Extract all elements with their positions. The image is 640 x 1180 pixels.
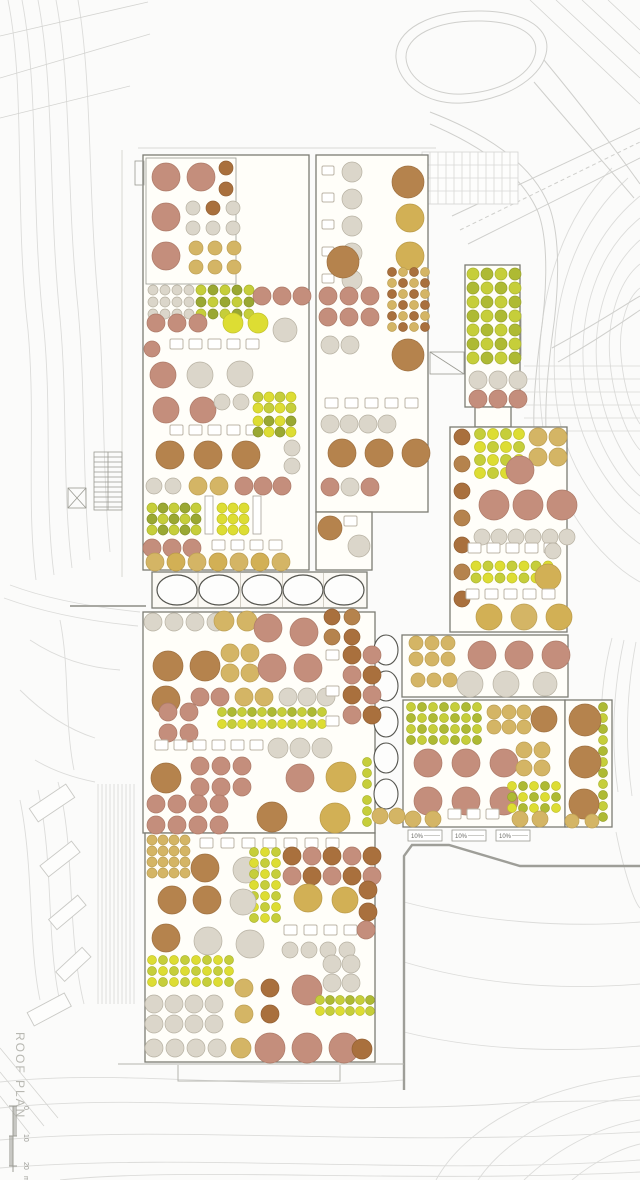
plant-circle bbox=[479, 490, 509, 520]
plant-circle bbox=[227, 361, 253, 387]
plant-circle bbox=[180, 835, 190, 845]
plant-circle bbox=[481, 324, 493, 336]
plant-circle bbox=[160, 285, 170, 295]
planter-square bbox=[487, 543, 500, 553]
plant-circle bbox=[165, 613, 183, 631]
plant-circle bbox=[148, 285, 158, 295]
plant-circle bbox=[321, 336, 339, 354]
plant-circle bbox=[509, 371, 527, 389]
plant-circle bbox=[451, 725, 460, 734]
plant-circle bbox=[326, 762, 356, 792]
plant-circle bbox=[495, 324, 507, 336]
plant-circle bbox=[165, 1015, 183, 1033]
plant-circle bbox=[284, 458, 300, 474]
planter-square bbox=[250, 540, 263, 550]
plant-circle bbox=[490, 749, 518, 777]
plant-circle bbox=[185, 1015, 203, 1033]
plant-circle bbox=[343, 666, 361, 684]
plant-circle bbox=[467, 310, 479, 322]
plant-circle bbox=[208, 260, 222, 274]
plant-circle bbox=[473, 736, 482, 745]
gridded-building-roof bbox=[422, 152, 518, 204]
plant-circle bbox=[212, 757, 230, 775]
plant-circle bbox=[569, 746, 601, 778]
plant-circle bbox=[392, 166, 424, 198]
planter-square bbox=[242, 838, 255, 848]
plant-circle bbox=[169, 835, 179, 845]
plant-circle bbox=[462, 725, 471, 734]
planter-square bbox=[322, 274, 334, 283]
plant-circle bbox=[219, 182, 233, 196]
plant-circle bbox=[250, 848, 259, 857]
plant-circle bbox=[239, 514, 249, 524]
plant-circle bbox=[214, 978, 223, 987]
plant-circle bbox=[475, 442, 486, 453]
plant-circle bbox=[272, 870, 281, 879]
plant-circle bbox=[193, 886, 221, 914]
plant-circle bbox=[301, 942, 317, 958]
plant-circle bbox=[429, 725, 438, 734]
plant-circle bbox=[181, 978, 190, 987]
plant-circle bbox=[210, 477, 228, 495]
plant-circle bbox=[286, 416, 296, 426]
planter-square bbox=[344, 516, 357, 526]
plant-circle bbox=[495, 352, 507, 364]
plant-circle bbox=[226, 201, 240, 215]
plant-circle bbox=[250, 859, 259, 868]
plant-circle bbox=[253, 403, 263, 413]
plant-circle bbox=[203, 978, 212, 987]
plant-circle bbox=[569, 704, 601, 736]
plant-circle bbox=[217, 514, 227, 524]
plant-circle bbox=[344, 609, 360, 625]
plant-circle bbox=[547, 490, 577, 520]
plant-circle bbox=[414, 749, 442, 777]
plant-circle bbox=[209, 553, 227, 571]
planter-square bbox=[284, 925, 297, 935]
plant-circle bbox=[261, 979, 279, 997]
plant-circle bbox=[475, 455, 486, 466]
plant-circle bbox=[328, 439, 356, 467]
plant-circle bbox=[363, 780, 372, 789]
plant-circle bbox=[343, 847, 361, 865]
plant-circle bbox=[239, 525, 249, 535]
plant-circle bbox=[410, 301, 419, 310]
plant-circle bbox=[440, 736, 449, 745]
plant-circle bbox=[228, 720, 237, 729]
plant-circle bbox=[298, 720, 307, 729]
plant-circle bbox=[495, 573, 505, 583]
hillside-buildings bbox=[27, 784, 91, 1026]
plant-circle bbox=[294, 654, 322, 682]
plant-circle bbox=[208, 297, 218, 307]
plant-circle bbox=[221, 664, 239, 682]
plant-circle bbox=[425, 652, 439, 666]
scale-unit: m bbox=[22, 1176, 29, 1180]
plant-circle bbox=[228, 503, 238, 513]
planter-square bbox=[486, 809, 499, 819]
plant-circle bbox=[254, 477, 272, 495]
plant-circle bbox=[363, 666, 381, 684]
plant-circle bbox=[495, 561, 505, 571]
plant-circle bbox=[214, 394, 230, 410]
plant-circle bbox=[467, 268, 479, 280]
plant-circle bbox=[238, 720, 247, 729]
plant-circle bbox=[469, 371, 487, 389]
stair-west bbox=[68, 452, 122, 510]
plant-circle bbox=[147, 846, 157, 856]
plant-circle bbox=[414, 787, 442, 815]
plant-circle bbox=[196, 297, 206, 307]
plant-circle bbox=[169, 868, 179, 878]
plant-circle bbox=[189, 241, 203, 255]
plant-circle bbox=[150, 362, 176, 388]
plant-circle bbox=[147, 503, 157, 513]
plant-circle bbox=[363, 796, 372, 805]
plant-circle bbox=[191, 525, 201, 535]
planter-square bbox=[284, 838, 297, 848]
plant-circle bbox=[264, 416, 274, 426]
plant-circle bbox=[366, 1007, 375, 1016]
plant-circle bbox=[443, 673, 457, 687]
plant-circle bbox=[232, 441, 260, 469]
plant-circle bbox=[388, 290, 397, 299]
plant-circle bbox=[363, 758, 372, 767]
planter-square bbox=[325, 398, 338, 408]
plant-circle bbox=[290, 738, 310, 758]
plant-circle bbox=[235, 688, 253, 706]
plant-circle bbox=[402, 439, 430, 467]
planter-square bbox=[221, 838, 234, 848]
plant-circle bbox=[565, 814, 579, 828]
roof-plan-drawing: 10%10%10% ROOF PLAN 0 10 20 m bbox=[0, 0, 640, 1180]
plant-circle bbox=[599, 747, 608, 756]
planter-square bbox=[231, 740, 244, 750]
planter-square bbox=[208, 425, 221, 435]
plant-circle bbox=[519, 561, 529, 571]
plant-circle bbox=[418, 714, 427, 723]
plant-circle bbox=[475, 429, 486, 440]
plant-circle bbox=[180, 846, 190, 856]
plant-circle bbox=[235, 1005, 253, 1023]
plant-circle bbox=[451, 736, 460, 745]
plant-circle bbox=[293, 287, 311, 305]
skylight bbox=[157, 575, 197, 605]
plant-circle bbox=[180, 724, 198, 742]
plant-circle bbox=[418, 725, 427, 734]
porthole bbox=[374, 779, 398, 809]
plant-circle bbox=[192, 967, 201, 976]
plant-circle bbox=[230, 889, 256, 915]
plant-circle bbox=[206, 221, 220, 235]
plant-circle bbox=[531, 706, 557, 732]
plant-circle bbox=[487, 705, 501, 719]
plant-circle bbox=[356, 1007, 365, 1016]
plant-circle bbox=[286, 764, 314, 792]
plant-circle bbox=[340, 308, 358, 326]
plant-circle bbox=[343, 646, 361, 664]
plant-circle bbox=[361, 478, 379, 496]
plant-circle bbox=[519, 573, 529, 583]
plant-circle bbox=[332, 887, 358, 913]
plant-circle bbox=[144, 341, 160, 357]
plant-circle bbox=[272, 848, 281, 857]
plant-circle bbox=[278, 708, 287, 717]
plant-circle bbox=[343, 706, 361, 724]
plant-circle bbox=[232, 285, 242, 295]
plant-circle bbox=[261, 881, 270, 890]
plant-circle bbox=[217, 503, 227, 513]
plant-circle bbox=[483, 561, 493, 571]
planter-square bbox=[504, 589, 517, 599]
plant-circle bbox=[233, 778, 251, 796]
plant-circle bbox=[506, 456, 534, 484]
plant-circle bbox=[407, 714, 416, 723]
plant-circle bbox=[147, 835, 157, 845]
plant-circle bbox=[146, 553, 164, 571]
plant-circle bbox=[190, 397, 216, 423]
plant-circle bbox=[344, 629, 360, 645]
plant-circle bbox=[189, 816, 207, 834]
planter-square bbox=[170, 339, 183, 349]
plant-circle bbox=[599, 780, 608, 789]
plant-circle bbox=[181, 967, 190, 976]
plant-circle bbox=[158, 886, 186, 914]
plant-circle bbox=[147, 795, 165, 813]
plant-circle bbox=[147, 525, 157, 535]
plant-circle bbox=[359, 415, 377, 433]
plant-circle bbox=[316, 996, 325, 1005]
plant-circle bbox=[481, 268, 493, 280]
plant-circle bbox=[294, 884, 322, 912]
plant-circle bbox=[184, 285, 194, 295]
plant-circle bbox=[170, 978, 179, 987]
plant-circle bbox=[158, 835, 168, 845]
plant-circle bbox=[264, 427, 274, 437]
plant-circle bbox=[208, 241, 222, 255]
plant-circle bbox=[473, 714, 482, 723]
plant-circle bbox=[168, 795, 186, 813]
plant-circle bbox=[180, 525, 190, 535]
ramps: 10%10%10% bbox=[408, 830, 530, 841]
plant-circle bbox=[363, 646, 381, 664]
plant-circle bbox=[342, 189, 362, 209]
plant-circle bbox=[170, 967, 179, 976]
plant-circle bbox=[264, 403, 274, 413]
planter-square bbox=[326, 838, 339, 848]
plant-circle bbox=[599, 802, 608, 811]
plant-circle bbox=[599, 736, 608, 745]
plant-circle bbox=[298, 688, 316, 706]
plant-circle bbox=[186, 221, 200, 235]
plant-circle bbox=[180, 703, 198, 721]
plant-circle bbox=[258, 654, 286, 682]
plant-circle bbox=[158, 514, 168, 524]
plant-circle bbox=[488, 442, 499, 453]
plant-circle bbox=[514, 442, 525, 453]
planter-square bbox=[263, 838, 276, 848]
plant-circle bbox=[169, 525, 179, 535]
plant-circle bbox=[303, 867, 321, 885]
plant-circle bbox=[392, 339, 424, 371]
plant-circle bbox=[223, 313, 243, 333]
plant-circle bbox=[272, 553, 290, 571]
plant-circle bbox=[512, 811, 528, 827]
plant-circle bbox=[508, 793, 517, 802]
planter-square bbox=[269, 540, 282, 550]
plant-circle bbox=[284, 440, 300, 456]
plant-circle bbox=[363, 769, 372, 778]
plant-circle bbox=[396, 242, 424, 270]
plant-circle bbox=[388, 323, 397, 332]
plant-circle bbox=[513, 490, 543, 520]
plant-circle bbox=[189, 260, 203, 274]
plant-circle bbox=[535, 564, 561, 590]
plant-circle bbox=[286, 403, 296, 413]
plant-circle bbox=[501, 429, 512, 440]
plant-circle bbox=[418, 736, 427, 745]
plant-circle bbox=[253, 416, 263, 426]
plant-circle bbox=[191, 688, 209, 706]
plant-circle bbox=[429, 736, 438, 745]
plant-circle bbox=[273, 477, 291, 495]
plant-circle bbox=[273, 318, 297, 342]
plant-circle bbox=[225, 956, 234, 965]
plant-circle bbox=[321, 415, 339, 433]
skylight bbox=[242, 575, 282, 605]
plant-circle bbox=[495, 338, 507, 350]
plant-circle bbox=[529, 428, 547, 446]
plant-circle bbox=[206, 201, 220, 215]
plant-circle bbox=[462, 703, 471, 712]
plant-circle bbox=[505, 641, 533, 669]
plant-circle bbox=[261, 903, 270, 912]
plant-circle bbox=[226, 221, 240, 235]
plant-circle bbox=[454, 564, 470, 580]
plant-circle bbox=[481, 296, 493, 308]
plant-circle bbox=[441, 636, 455, 650]
plant-circle bbox=[517, 705, 531, 719]
plant-circle bbox=[189, 795, 207, 813]
ramp-slope-label: 10% bbox=[455, 834, 468, 840]
scale-tick-20: 20 bbox=[22, 1162, 29, 1170]
plant-circle bbox=[218, 720, 227, 729]
plant-circle bbox=[542, 641, 570, 669]
planter-square bbox=[467, 809, 480, 819]
plant-circle bbox=[227, 241, 241, 255]
plant-circle bbox=[399, 323, 408, 332]
plant-circle bbox=[189, 314, 207, 332]
plant-circle bbox=[152, 242, 180, 270]
plant-circle bbox=[261, 848, 270, 857]
plant-circle bbox=[288, 720, 297, 729]
plant-circle bbox=[250, 870, 259, 879]
planter-square bbox=[344, 925, 357, 935]
plant-circle bbox=[509, 352, 521, 364]
plant-circle bbox=[342, 955, 360, 973]
plant-circle bbox=[359, 881, 377, 899]
plant-circle bbox=[169, 514, 179, 524]
plant-circle bbox=[208, 1039, 226, 1057]
plant-circle bbox=[191, 757, 209, 775]
plant-circle bbox=[220, 285, 230, 295]
plant-circle bbox=[519, 793, 528, 802]
plant-circle bbox=[272, 892, 281, 901]
plant-circle bbox=[361, 308, 379, 326]
plant-circle bbox=[196, 285, 206, 295]
plant-circle bbox=[151, 763, 181, 793]
planter-square bbox=[305, 838, 318, 848]
plant-circle bbox=[409, 652, 423, 666]
plant-circle bbox=[473, 725, 482, 734]
plant-circle bbox=[396, 204, 424, 232]
plant-circle bbox=[160, 297, 170, 307]
plant-circle bbox=[170, 956, 179, 965]
plant-circle bbox=[251, 553, 269, 571]
plant-circle bbox=[454, 429, 470, 445]
plant-circle bbox=[481, 282, 493, 294]
plant-circle bbox=[152, 163, 180, 191]
planter-bed bbox=[205, 496, 213, 534]
plant-circle bbox=[145, 1039, 163, 1057]
plant-circle bbox=[230, 553, 248, 571]
plant-circle bbox=[399, 301, 408, 310]
planter-square bbox=[322, 193, 334, 202]
plant-circle bbox=[248, 313, 268, 333]
plant-circle bbox=[399, 290, 408, 299]
plant-circle bbox=[211, 688, 229, 706]
plant-circle bbox=[158, 868, 168, 878]
plant-circle bbox=[228, 525, 238, 535]
plant-circle bbox=[146, 478, 162, 494]
plant-circle bbox=[257, 802, 287, 832]
planter-square bbox=[523, 589, 536, 599]
planter-square bbox=[324, 925, 337, 935]
plant-circle bbox=[481, 338, 493, 350]
plant-circle bbox=[473, 703, 482, 712]
plant-circle bbox=[169, 846, 179, 856]
plant-circle bbox=[410, 268, 419, 277]
plant-circle bbox=[516, 742, 532, 758]
plant-circle bbox=[336, 996, 345, 1005]
plant-circle bbox=[418, 703, 427, 712]
plant-circle bbox=[166, 1039, 184, 1057]
plant-circle bbox=[312, 738, 332, 758]
plant-circle bbox=[180, 503, 190, 513]
planter-square bbox=[322, 220, 334, 229]
plant-circle bbox=[502, 720, 516, 734]
plant-circle bbox=[152, 924, 180, 952]
plant-circle bbox=[495, 310, 507, 322]
plant-circle bbox=[244, 297, 254, 307]
plant-circle bbox=[238, 708, 247, 717]
plant-circle bbox=[279, 688, 297, 706]
plant-circle bbox=[272, 914, 281, 923]
planter-square bbox=[227, 425, 240, 435]
planter-square bbox=[304, 925, 317, 935]
planter-square bbox=[326, 650, 339, 660]
planter-square bbox=[193, 740, 206, 750]
plant-circle bbox=[241, 644, 259, 662]
plant-circle bbox=[205, 995, 223, 1013]
plant-circle bbox=[427, 673, 441, 687]
plant-circle bbox=[172, 297, 182, 307]
plant-circle bbox=[352, 1039, 372, 1059]
plant-circle bbox=[214, 956, 223, 965]
plant-circle bbox=[218, 708, 227, 717]
plant-circle bbox=[599, 791, 608, 800]
plant-circle bbox=[511, 604, 537, 630]
